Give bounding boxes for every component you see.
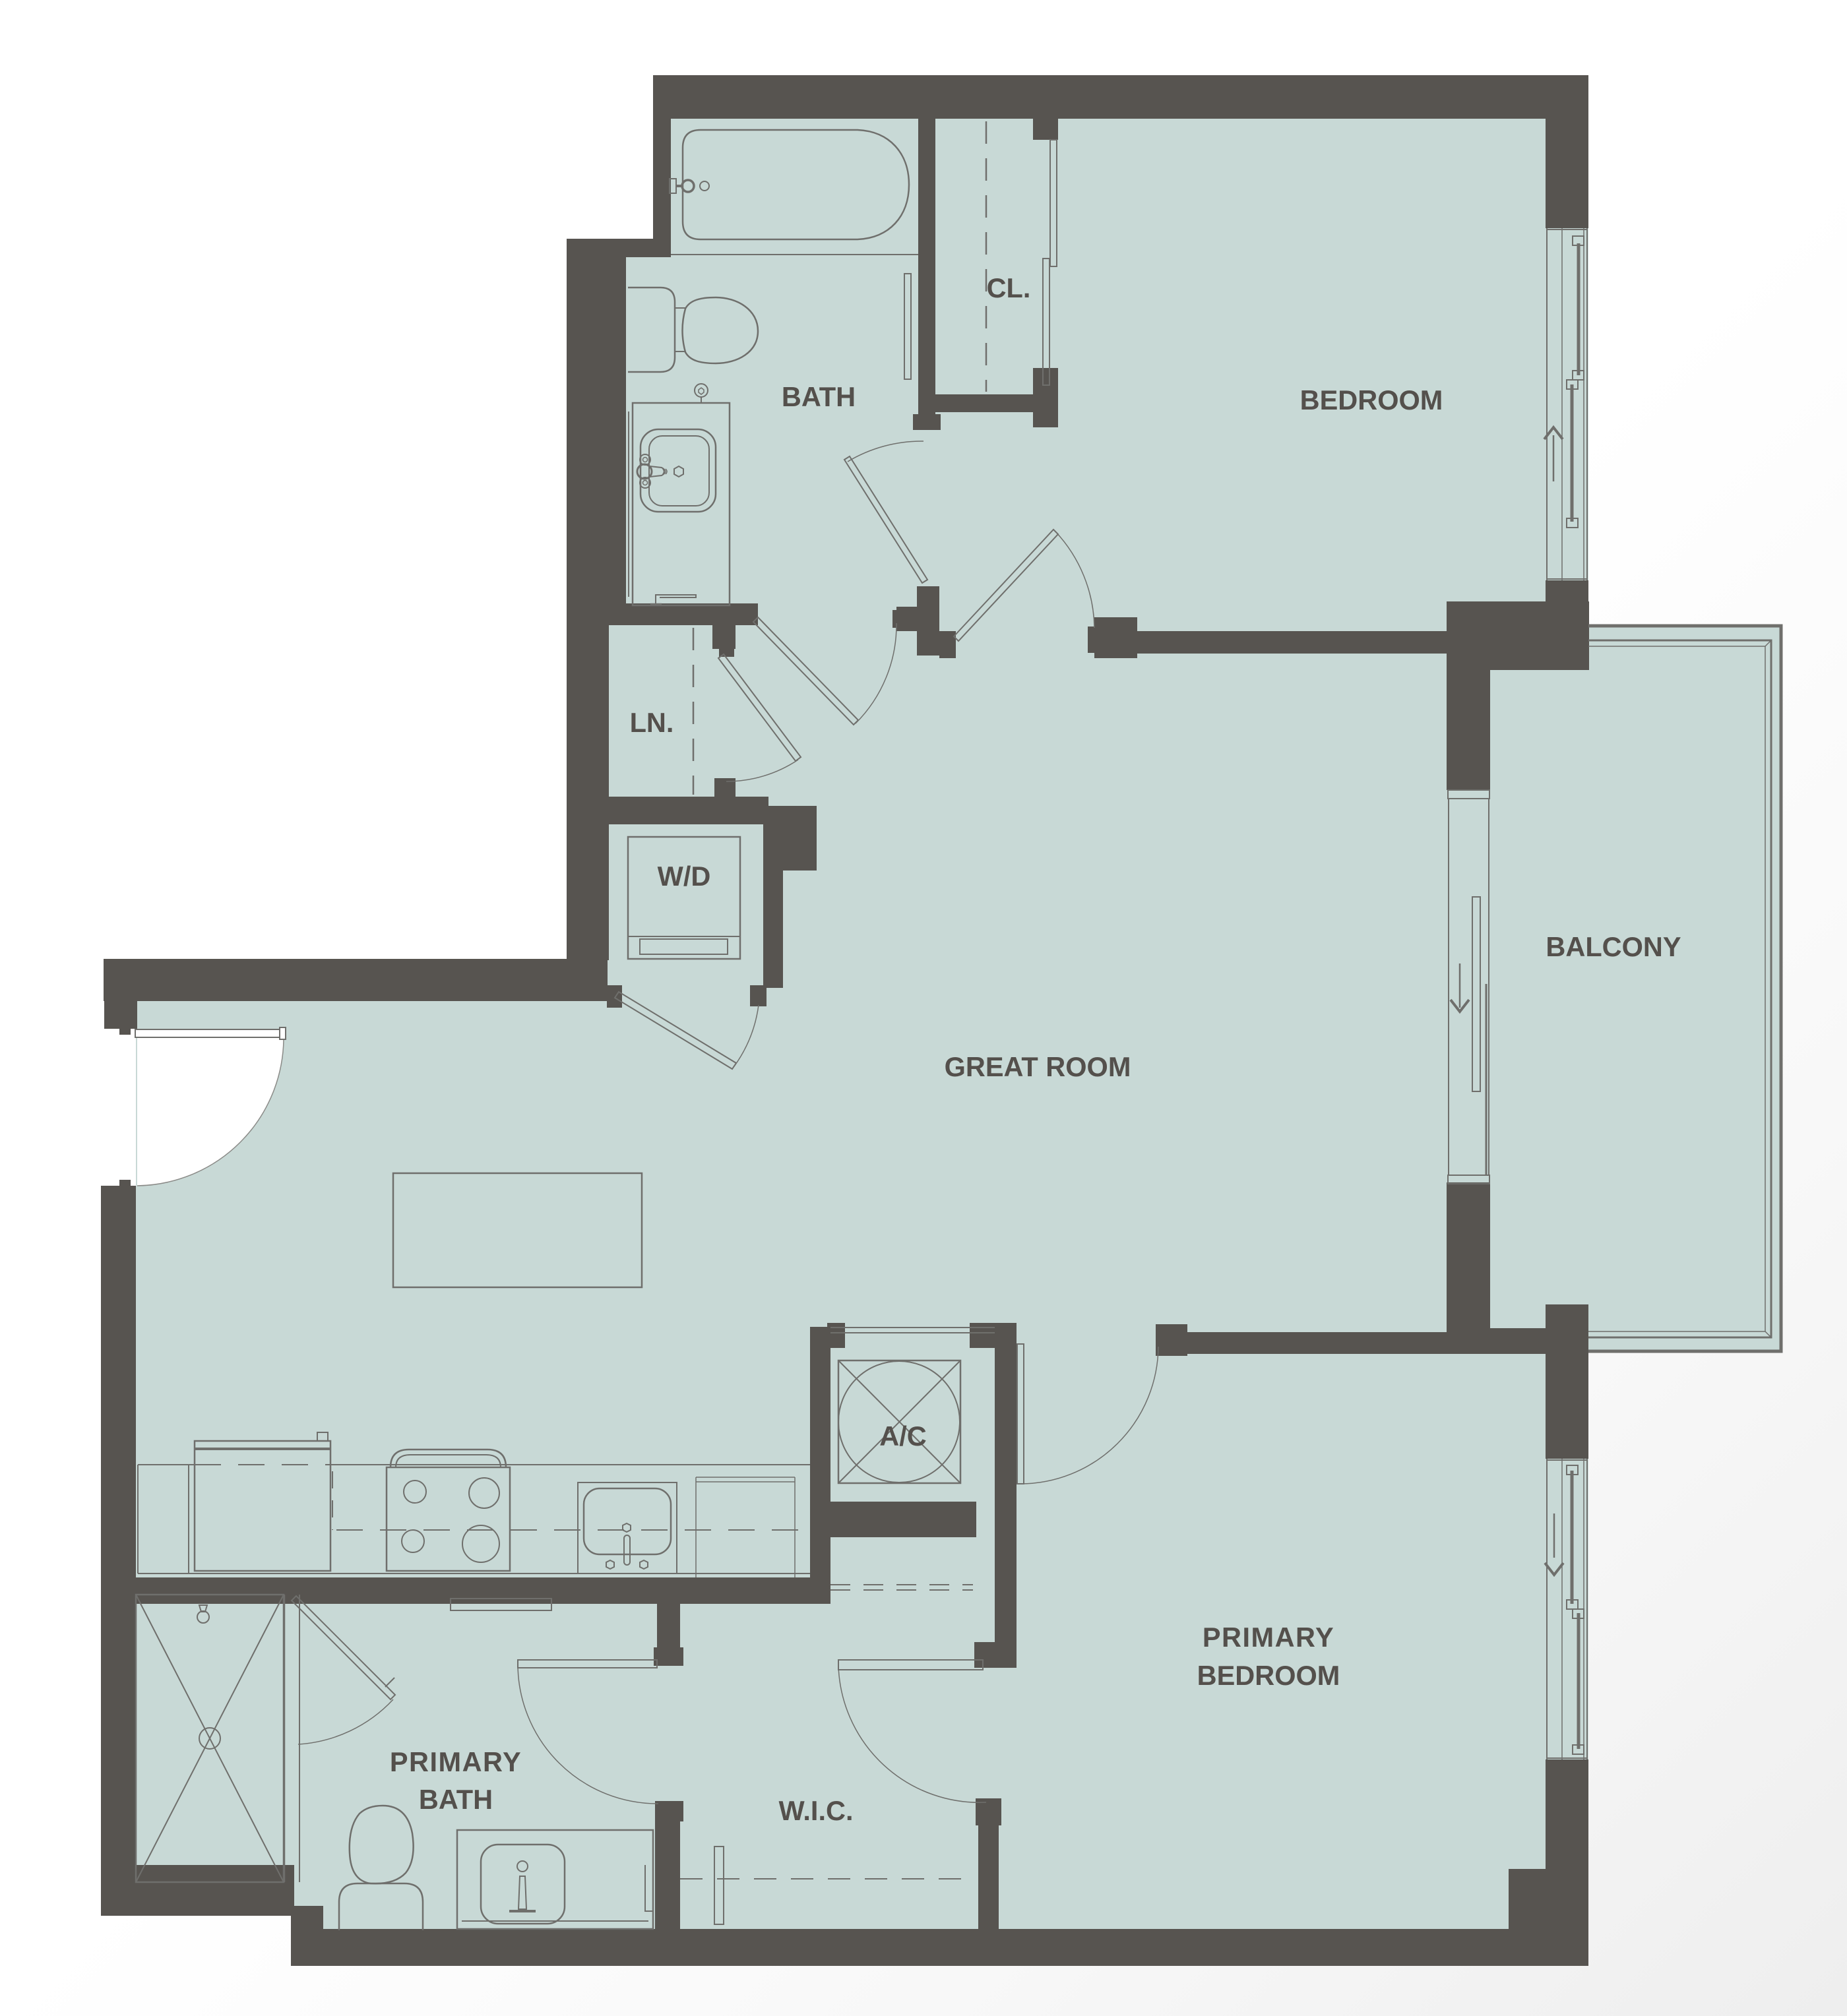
svg-text:PRIMARY: PRIMARY [390,1746,522,1777]
svg-text:A/C: A/C [879,1420,926,1451]
svg-text:W.I.C.: W.I.C. [779,1795,854,1826]
svg-text:BEDROOM: BEDROOM [1197,1660,1340,1691]
svg-text:PRIMARY: PRIMARY [1203,1622,1334,1653]
svg-text:W/D: W/D [658,861,711,892]
svg-text:BALCONY: BALCONY [1546,931,1681,962]
svg-text:BATH: BATH [782,381,856,412]
svg-text:BEDROOM: BEDROOM [1300,384,1443,415]
svg-text:CL.: CL. [987,272,1031,303]
svg-text:GREAT ROOM: GREAT ROOM [945,1051,1131,1082]
svg-text:BATH: BATH [419,1784,493,1815]
svg-text:LN.: LN. [630,707,674,738]
